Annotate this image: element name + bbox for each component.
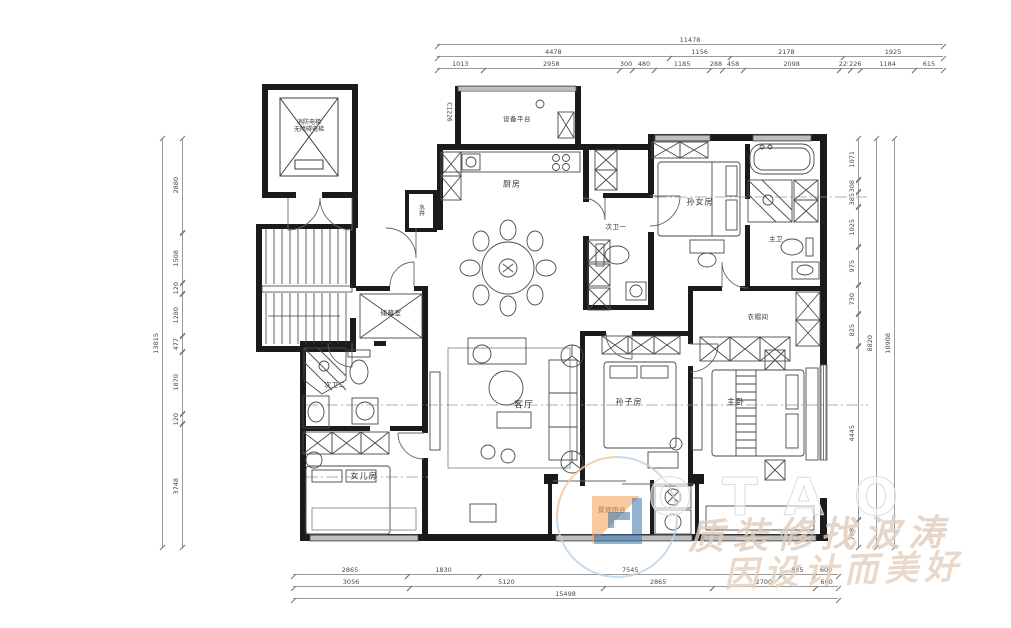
dim-segment: 308 [846, 180, 859, 192]
label-daughter-room: 女儿房 [351, 471, 378, 482]
dim-segment: 226 [850, 58, 860, 69]
label-granddaughter-room: 孙女房 [687, 197, 714, 208]
dim-segment: 8820 [864, 138, 877, 548]
dim-segment: 2958 [483, 58, 619, 69]
bath1-fixtures [588, 240, 646, 310]
label-window-code: C1226 [446, 102, 453, 121]
label-living-room: 客厅 [514, 398, 534, 411]
dim-segment: 600 [815, 576, 838, 587]
dim-segment: 13815 [150, 138, 163, 548]
label-bath2: 次卫二 [325, 379, 346, 389]
dim-segment: 2178 [730, 46, 843, 57]
label-equipment-platform: 设备平台 [503, 113, 531, 123]
dim-col-right-segments: 1071 308 385 1025 975 730 825 4445 708 [846, 138, 859, 548]
dim-segment: 477 [170, 336, 183, 352]
dim-segment: 1830 [407, 564, 480, 575]
daughter-furniture [303, 432, 416, 534]
cloakroom-wardrobes [700, 292, 820, 361]
label-bath1: 次卫一 [606, 221, 627, 231]
elevator-cab [280, 98, 338, 176]
dim-segment: 708 [846, 520, 859, 548]
masterbath-fixtures [748, 144, 819, 279]
dim-segment: 1156 [670, 46, 730, 57]
dining-table [460, 220, 556, 316]
label-kitchen: 厨房 [503, 179, 521, 190]
dim-segment: 458 [723, 58, 744, 69]
dim-segment: 730 [846, 285, 859, 314]
dim-segment: 2098 [744, 58, 840, 69]
doors [288, 196, 748, 484]
dims-left: 13815 2880 1508 120 1280 477 1870 120 37… [150, 138, 183, 548]
master-furniture [692, 350, 818, 530]
label-storage: 储藏室 [381, 307, 402, 317]
dim-segment: 975 [846, 247, 859, 285]
laundry-units [655, 486, 691, 534]
dim-segment: 4478 [437, 46, 670, 57]
dim-segment: 845 [780, 564, 814, 575]
dim-segment: 1184 [861, 58, 915, 69]
dim-row-bottom-2: 3056 5120 2865 2700 600 [293, 576, 838, 587]
kitchen-fixtures [441, 150, 617, 200]
dim-segment: 120 [170, 414, 183, 425]
dim-col-left-segments: 2880 1508 120 1280 477 1870 120 3748 [170, 138, 183, 548]
dim-col-right-total: 10908 [882, 138, 895, 548]
dim-segment: 385 [846, 192, 859, 207]
label-master-bedroom: 主卧 [727, 397, 745, 408]
floor-plan: 消防电梯 无障碍电梯 设备平台 C1226 水井 厨房 次卫一 孙女房 主卫 衣… [0, 0, 1011, 628]
dim-segment: 4445 [846, 346, 859, 520]
label-water-shaft: 水井 [417, 204, 426, 216]
label-cloakroom: 衣帽间 [748, 311, 769, 321]
dims-right: 1071 308 385 1025 975 730 825 4445 708 8… [846, 138, 895, 548]
dim-segment: 1508 [170, 233, 183, 283]
elevator-line2: 无障碍电梯 [294, 126, 324, 133]
dim-segment: 120 [170, 283, 183, 294]
dim-row-top-total: 11478 [437, 34, 943, 45]
dim-segment: 825 [846, 314, 859, 346]
label-balcony: 景观阳台 [598, 504, 626, 514]
dim-segment: 7545 [480, 564, 780, 575]
dim-segment: 1071 [846, 138, 859, 180]
dim-segment: 1925 [843, 46, 943, 57]
dims-top: 11478 4478 1156 2178 1925 1013 2958 300 … [437, 34, 943, 70]
dim-segment: 480 [633, 58, 655, 69]
dim-segment: 600 [814, 564, 838, 575]
dim-row-bottom-total: 15498 [293, 588, 838, 599]
dim-row-bottom-1: 2865 1830 7545 845 600 [293, 564, 838, 575]
living-furniture [430, 338, 583, 522]
dim-segment: 1185 [655, 58, 709, 69]
dim-row-top-3: 1013 2958 300 480 1185 288 458 2098 225 … [437, 58, 943, 69]
elevator-line1: 消防电梯 [297, 119, 321, 126]
dim-row-top-2: 4478 1156 2178 1925 [437, 46, 943, 57]
dim-segment: 1013 [437, 58, 483, 69]
label-grandson-room: 孙子房 [616, 397, 643, 408]
dim-segment: 2865 [293, 564, 407, 575]
dim-segment: 1870 [170, 352, 183, 414]
dim-segment: 2865 [604, 576, 713, 587]
dim-segment: 300 [619, 58, 633, 69]
dim-col-left-total: 13815 [150, 138, 163, 548]
dim-segment: 1025 [846, 207, 859, 247]
label-elevator: 消防电梯 无障碍电梯 [294, 119, 324, 133]
stairs [262, 229, 352, 344]
dim-segment: 3056 [293, 576, 409, 587]
dim-col-right-mid: 8820 [864, 138, 877, 548]
dim-segment: 5120 [409, 576, 604, 587]
dim-segment: 10908 [882, 138, 895, 548]
label-master-bath: 主卫 [769, 233, 783, 243]
dim-segment: 11478 [437, 34, 943, 45]
dim-segment: 1280 [170, 294, 183, 336]
dim-segment: 15498 [293, 588, 838, 599]
dim-segment: 3748 [170, 424, 183, 548]
platform-detail [536, 100, 574, 138]
dim-segment: 2700 [713, 576, 816, 587]
dim-segment: 288 [709, 58, 722, 69]
dim-segment: 615 [915, 58, 943, 69]
dims-bottom: 2865 1830 7545 845 600 3056 5120 2865 27… [293, 564, 838, 600]
dim-segment: 2880 [170, 138, 183, 233]
